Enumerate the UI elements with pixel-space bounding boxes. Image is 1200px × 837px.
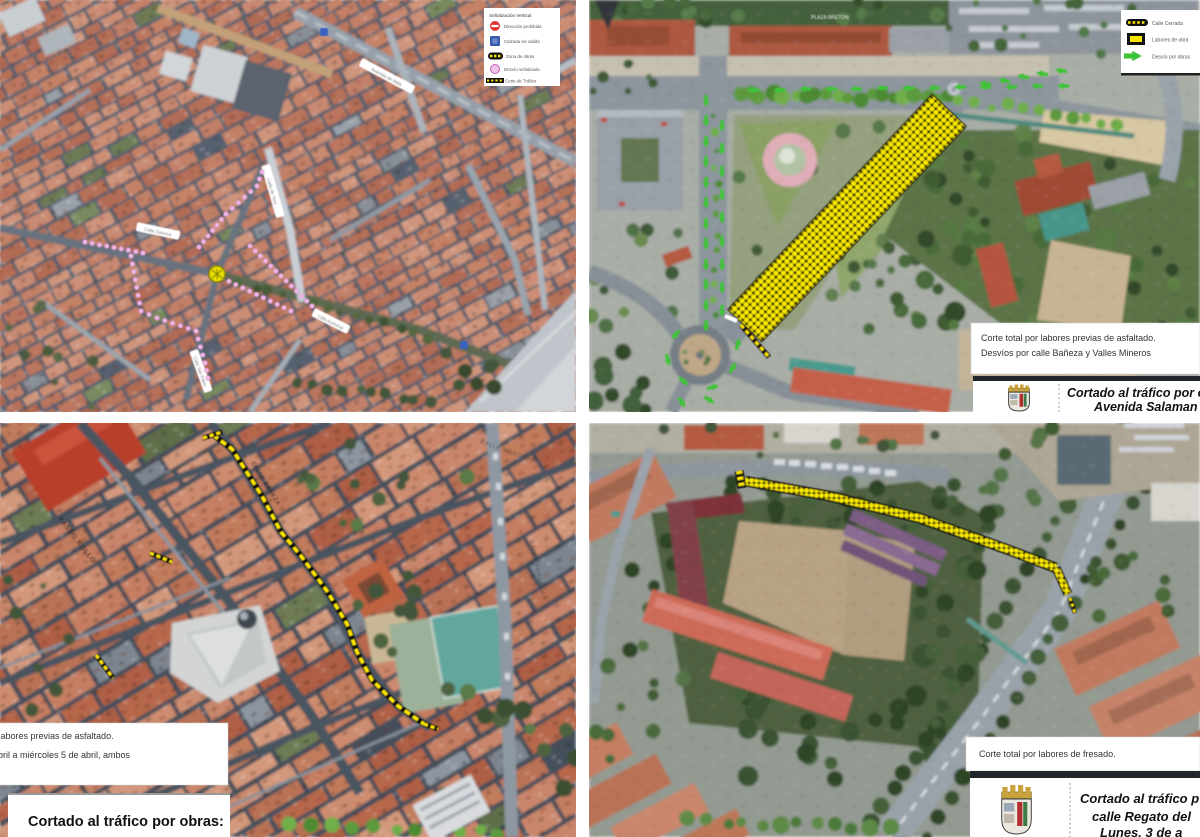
svg-text:abril a miércoles 5 de abril,: abril a miércoles 5 de abril, ambos [0,750,131,760]
svg-text:Desvíos por calle Bañeza y Val: Desvíos por calle Bañeza y Valles Minero… [981,348,1151,358]
svg-text:Calzada sin salida: Calzada sin salida [504,39,540,44]
svg-text:Labores de obra: Labores de obra [1152,38,1189,44]
svg-text:Avenida Salaman: Avenida Salaman [1093,400,1198,412]
svg-text:Señalización Vertical: Señalización Vertical [489,13,531,18]
svg-text:Zona de obras: Zona de obras [506,54,535,59]
svg-text:r labores previas de asfaltado: r labores previas de asfaltado. [0,731,114,741]
svg-text:Desvío por obras: Desvío por obras [1152,55,1191,61]
svg-text:Cortado al tráfico por o: Cortado al tráfico por o [1067,386,1200,400]
svg-text:Desvío señalizado: Desvío señalizado [504,67,540,72]
svg-text:Corte de Tráfico: Corte de Tráfico [505,79,537,84]
svg-text:Corte total por labores previa: Corte total por labores previas de asfal… [981,333,1156,343]
svg-text:Calle Cerrada: Calle Cerrada [1152,21,1183,27]
svg-text:Dirección prohibida: Dirección prohibida [504,24,542,29]
svg-text:calle Regato del: calle Regato del [1092,809,1191,824]
svg-text:Corte total por labores de fre: Corte total por labores de fresado. [979,749,1116,759]
svg-text:Cortado al tráfico p: Cortado al tráfico p [1080,791,1199,806]
svg-text:PLAZA BRETON: PLAZA BRETON [811,15,849,21]
svg-text:Cortado al tráfico por obras:: Cortado al tráfico por obras: [28,814,224,830]
svg-text:Lunes, 3 de a: Lunes, 3 de a [1100,825,1182,837]
